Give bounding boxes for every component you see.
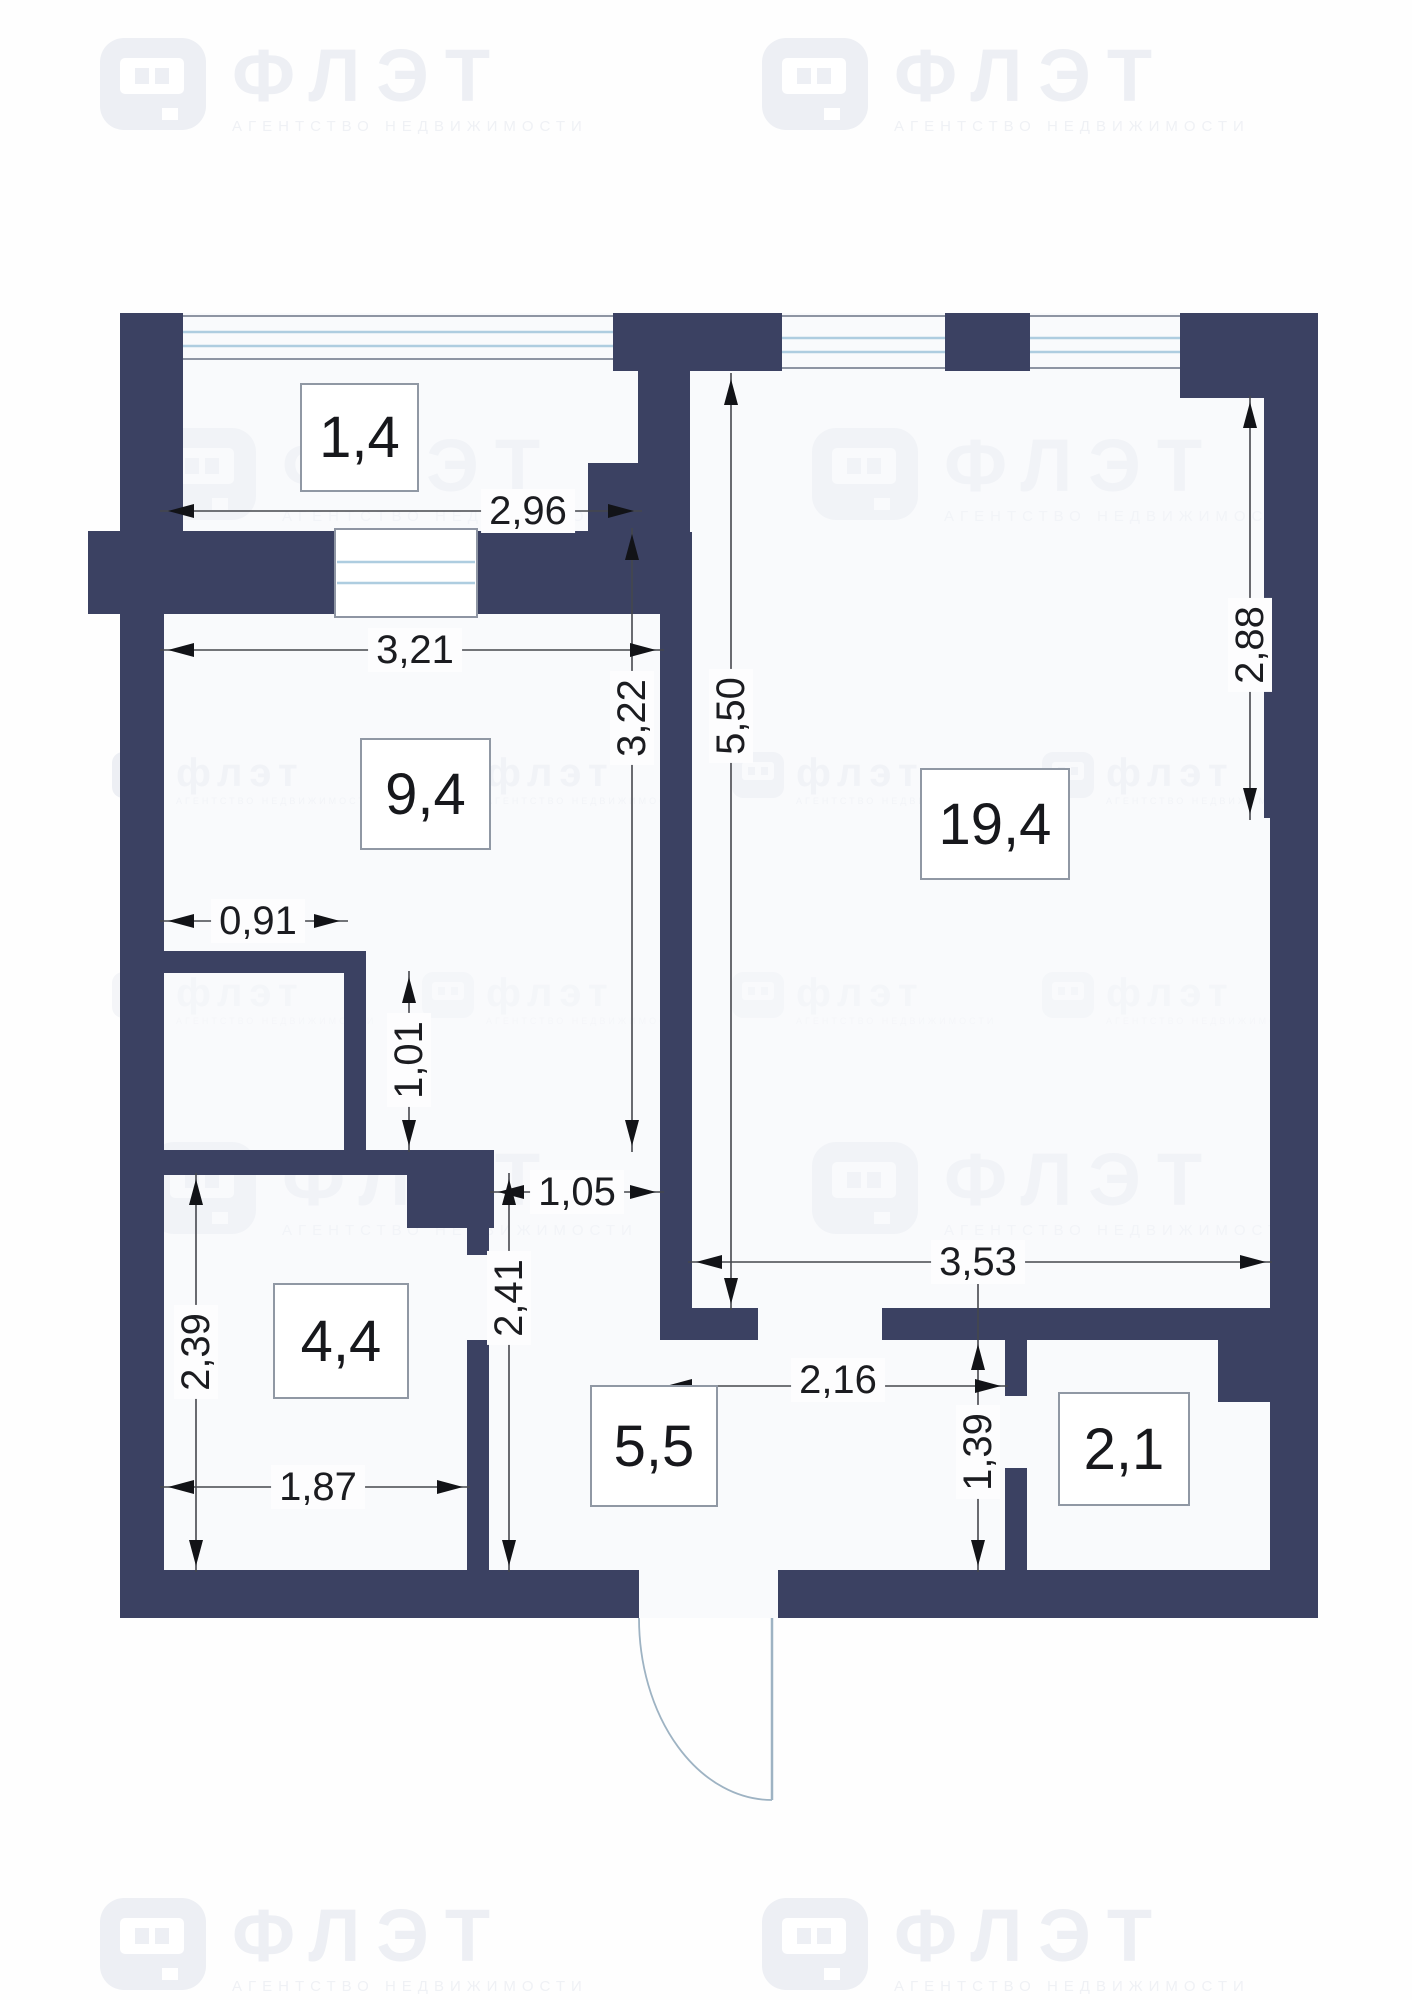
living-window-a-glass: [782, 338, 945, 352]
wall-niche-north: [164, 951, 366, 973]
balcony-window-frame: [183, 316, 613, 359]
wall-living-south-stub: [692, 1308, 758, 1340]
dim-bedroom-width: 3,21: [368, 628, 462, 672]
wall-northeast-corner: [1180, 313, 1318, 398]
room-label-bedroom: 9,4: [360, 738, 491, 850]
living-window-b-frame: [1030, 316, 1180, 368]
wall-wardrobe-east-upper: [467, 1175, 489, 1255]
wall-bathroom-door-jamb: [1005, 1340, 1027, 1396]
balcony-window-glass: [183, 332, 613, 346]
floor-plan-page: ФЛЭТ АГЕНТСТВО НЕДВИЖИМОСТИ ФЛЭТ АГЕНТСТ…: [0, 0, 1412, 2000]
wall-exterior-south-right: [778, 1570, 1318, 1618]
wall-exterior-east-lower: [1270, 818, 1318, 1618]
room-label-balcony: 1,4: [300, 383, 419, 492]
wall-west-pier: [88, 531, 120, 614]
dim-living-window-side: 2,88: [1228, 598, 1272, 692]
dim-hall-width: 2,16: [791, 1358, 885, 1402]
wall-center: [660, 532, 692, 1340]
wall-exterior-east-upper: [1264, 398, 1318, 818]
entrance-door-arc: [639, 1618, 772, 1800]
wall-bathroom-pilaster: [1218, 1340, 1270, 1402]
dim-niche-width: 0,91: [211, 899, 305, 943]
living-window-a-frame: [782, 316, 945, 368]
wall-exterior-west: [120, 313, 164, 1618]
dim-wardrobe-height: 2,39: [174, 1305, 218, 1399]
room-label-hallway: 5,5: [590, 1385, 718, 1507]
dim-living-width: 3,53: [931, 1240, 1025, 1284]
wall-north-pier: [945, 313, 1030, 371]
floor-plan-drawing: [0, 0, 1412, 2000]
wall-hall-north: [164, 1150, 494, 1175]
dim-bathroom-opening: 1,39: [956, 1405, 1000, 1499]
wall-wardrobe-east-lower: [467, 1340, 489, 1570]
dim-hall-height: 2,41: [487, 1251, 531, 1345]
wall-bathroom-north: [882, 1308, 1270, 1340]
dim-balcony-width: 2,96: [481, 489, 575, 533]
dim-niche-height: 1,01: [387, 1013, 431, 1107]
living-window-b-glass: [1030, 338, 1180, 352]
dim-living-height: 5,50: [709, 669, 753, 763]
wall-balcony-sill-right: [477, 531, 598, 614]
room-label-living: 19,4: [920, 768, 1070, 880]
wall-exterior-south-left: [120, 1570, 639, 1618]
wall-step-piece: [638, 371, 690, 463]
wall-north-middle: [613, 313, 782, 371]
balcony-door-window-box: [335, 529, 477, 617]
dim-hall-door-width: 1,05: [530, 1170, 624, 1214]
room-label-wardrobe: 4,4: [273, 1283, 409, 1399]
entrance-door: [639, 1618, 772, 1800]
wall-niche-east: [344, 973, 366, 1150]
dim-bedroom-height: 3,22: [610, 671, 654, 765]
wall-balcony-sill-left: [120, 531, 335, 614]
room-label-bathroom: 2,1: [1058, 1392, 1190, 1506]
dim-wardrobe-width: 1,87: [271, 1465, 365, 1509]
wall-bathroom-west-lower: [1005, 1468, 1027, 1570]
